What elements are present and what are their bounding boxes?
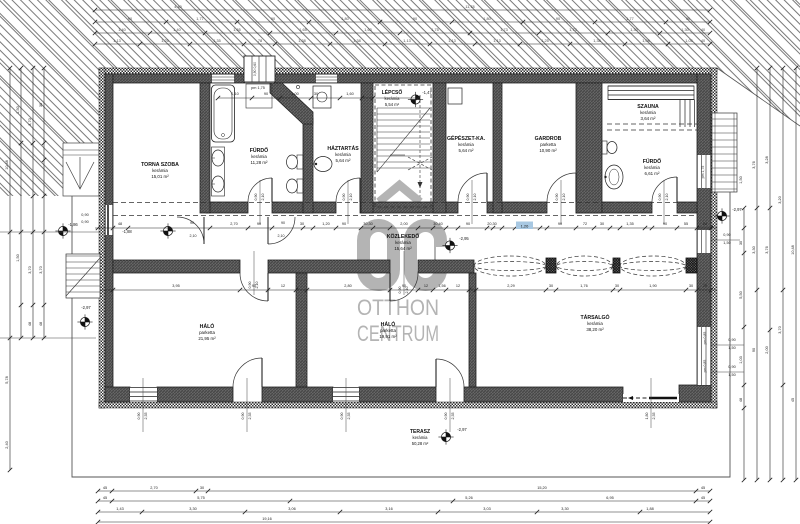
svg-text:48: 48 [28, 322, 32, 326]
svg-text:5,50: 5,50 [739, 291, 743, 298]
svg-text:3,28: 3,28 [765, 156, 769, 163]
svg-text:-1,86: -1,86 [68, 222, 78, 227]
svg-text:2,10: 2,10 [349, 194, 353, 201]
svg-text:parketta: parketta [540, 142, 556, 147]
svg-text:kerámia: kerámia [458, 142, 474, 147]
svg-text:2,35: 2,35 [451, 413, 455, 420]
svg-text:30: 30 [39, 103, 43, 107]
svg-text:1,30: 1,30 [681, 28, 688, 32]
svg-text:48: 48 [739, 398, 743, 402]
svg-text:FÜRDŐ: FÜRDŐ [250, 147, 268, 154]
svg-text:90: 90 [281, 221, 285, 225]
svg-text:5,64 m²: 5,64 m² [459, 148, 474, 153]
svg-text:2,70: 2,70 [230, 222, 237, 226]
svg-text:1,50: 1,50 [728, 346, 735, 350]
svg-text:1,03: 1,03 [739, 356, 743, 363]
svg-text:1,13: 1,13 [113, 39, 120, 43]
svg-text:1,76: 1,76 [580, 284, 587, 288]
svg-text:2,35: 2,35 [248, 413, 252, 420]
svg-text:kerámia: kerámia [640, 110, 656, 115]
svg-text:3,30: 3,30 [189, 507, 196, 511]
svg-text:3,70: 3,70 [28, 266, 32, 273]
svg-text:30,30: 30,30 [363, 222, 373, 226]
svg-text:1,80: 1,80 [645, 413, 649, 420]
svg-text:5,64 m²: 5,64 m² [336, 158, 351, 163]
svg-text:1,60: 1,60 [346, 92, 353, 96]
svg-text:kerámia: kerámia [644, 165, 660, 170]
svg-text:1,13: 1,13 [493, 39, 500, 43]
svg-text:1,50: 1,50 [739, 176, 743, 183]
svg-text:1,40: 1,40 [173, 28, 180, 32]
svg-text:19,16: 19,16 [262, 517, 272, 521]
svg-text:90: 90 [413, 17, 417, 21]
svg-text:45: 45 [103, 486, 107, 490]
svg-text:FÜRDŐ: FÜRDŐ [643, 158, 661, 165]
svg-text:0,90: 0,90 [658, 194, 662, 201]
svg-text:1,50: 1,50 [728, 373, 735, 377]
svg-text:40: 40 [701, 39, 705, 43]
svg-text:4,40: 4,40 [174, 5, 181, 9]
svg-text:40: 40 [701, 28, 705, 32]
svg-text:90: 90 [257, 222, 261, 226]
svg-text:10,48: 10,48 [791, 245, 795, 255]
svg-text:GÉPÉSZET-KA.: GÉPÉSZET-KA. [447, 134, 486, 142]
svg-text:2,10: 2,10 [261, 194, 265, 201]
svg-text:2,10: 2,10 [665, 194, 669, 201]
svg-text:1,13: 1,13 [403, 39, 410, 43]
svg-text:1,10: 1,10 [231, 92, 238, 96]
svg-text:3,16: 3,16 [385, 507, 392, 511]
svg-text:12: 12 [281, 284, 285, 288]
svg-text:90: 90 [342, 222, 346, 226]
svg-text:21,95 m²: 21,95 m² [198, 336, 216, 341]
svg-text:3,95: 3,95 [172, 284, 179, 288]
svg-text:90: 90 [264, 92, 268, 96]
svg-text:kerámia: kerámia [152, 168, 168, 173]
svg-text:3,03: 3,03 [483, 507, 490, 511]
svg-text:15,20: 15,20 [537, 486, 547, 490]
svg-text:45: 45 [103, 496, 107, 500]
svg-text:pm 0,85: pm 0,85 [703, 360, 707, 373]
svg-text:30: 30 [549, 284, 553, 288]
svg-text:78: 78 [258, 39, 262, 43]
svg-text:kerámia: kerámia [587, 321, 603, 326]
svg-text:1,77: 1,77 [626, 17, 633, 21]
svg-text:0,90: 0,90 [81, 220, 88, 224]
svg-text:3,20: 3,20 [778, 196, 782, 203]
svg-text:3,30: 3,30 [561, 507, 568, 511]
svg-text:48: 48 [39, 322, 43, 326]
svg-text:LÉPCSŐ: LÉPCSŐ [382, 88, 403, 96]
svg-text:CENTRUM: CENTRUM [357, 321, 439, 346]
svg-text:5,78: 5,78 [5, 376, 9, 383]
svg-text:0,90: 0,90 [340, 413, 344, 420]
svg-text:1,65: 1,65 [233, 28, 240, 32]
svg-text:45: 45 [701, 496, 705, 500]
svg-text:5,75: 5,75 [197, 496, 204, 500]
svg-text:0,90: 0,90 [241, 413, 245, 420]
svg-text:-2,97: -2,97 [81, 305, 91, 310]
svg-text:20: 20 [703, 284, 707, 288]
svg-text:2,80: 2,80 [344, 284, 351, 288]
svg-text:1,80: 1,80 [341, 17, 348, 21]
svg-text:2,00: 2,00 [765, 346, 769, 353]
svg-text:0,90: 0,90 [81, 213, 88, 217]
svg-text:1,08: 1,08 [642, 39, 649, 43]
svg-text:pm 1,75: pm 1,75 [251, 86, 265, 90]
svg-text:2,40: 2,40 [5, 441, 9, 448]
svg-text:90: 90 [556, 17, 560, 21]
svg-text:90: 90 [252, 284, 256, 288]
svg-text:2,10: 2,10 [562, 194, 566, 201]
svg-text:-1,47: -1,47 [422, 90, 432, 95]
svg-text:1,63: 1,63 [364, 28, 371, 32]
svg-text:1,65: 1,65 [299, 28, 306, 32]
svg-text:2,70: 2,70 [150, 486, 157, 490]
svg-text:90: 90 [271, 17, 275, 21]
svg-text:pm 0,85: pm 0,85 [703, 332, 707, 345]
svg-text:20,30: 20,30 [487, 222, 497, 226]
svg-text:38,20 m²: 38,20 m² [586, 327, 604, 332]
svg-text:1,75: 1,75 [431, 28, 438, 32]
svg-text:kerámia: kerámia [395, 240, 411, 245]
svg-text:1,13: 1,13 [448, 39, 455, 43]
svg-text:kerámia: kerámia [335, 152, 351, 157]
svg-text:3,30: 3,30 [752, 246, 756, 253]
svg-text:90: 90 [466, 222, 470, 226]
svg-text:2,35: 2,35 [347, 413, 351, 420]
svg-text:0,90: 0,90 [723, 233, 730, 237]
svg-text:90: 90 [752, 348, 756, 352]
svg-text:1,30: 1,30 [630, 28, 637, 32]
svg-text:0,90: 0,90 [137, 413, 141, 420]
svg-text:1,80: 1,80 [483, 17, 490, 21]
svg-text:90: 90 [663, 222, 667, 226]
svg-text:0,90 0,60: 0,90 0,60 [253, 62, 257, 76]
svg-text:-2,97: -2,97 [732, 207, 742, 212]
svg-text:90: 90 [558, 222, 562, 226]
svg-text:2,10: 2,10 [473, 194, 477, 201]
svg-text:parketta: parketta [380, 328, 396, 333]
svg-text:HÁLÓ: HÁLÓ [381, 320, 396, 328]
svg-text:1,35: 1,35 [213, 39, 220, 43]
svg-text:1,26: 1,26 [521, 224, 530, 229]
svg-text:1,88: 1,88 [646, 507, 653, 511]
svg-text:0,90: 0,90 [342, 194, 346, 201]
svg-text:90: 90 [686, 17, 690, 21]
svg-text:1,25: 1,25 [541, 39, 548, 43]
svg-text:1,38: 1,38 [298, 39, 305, 43]
svg-text:-2,97: -2,97 [457, 427, 467, 432]
svg-text:3,64 m²: 3,64 m² [641, 116, 656, 121]
svg-text:1,05: 1,05 [685, 39, 692, 43]
svg-text:1,25: 1,25 [161, 39, 168, 43]
svg-text:3,06: 3,06 [288, 507, 295, 511]
svg-text:kerámia: kerámia [413, 435, 429, 440]
svg-text:10,48: 10,48 [5, 160, 9, 170]
svg-text:90: 90 [190, 221, 194, 225]
svg-text:2,35: 2,35 [144, 413, 148, 420]
svg-text:2,00: 2,00 [400, 222, 407, 226]
svg-text:5,26: 5,26 [465, 496, 472, 500]
svg-text:30: 30 [739, 241, 743, 245]
svg-text:1,50: 1,50 [723, 241, 730, 245]
svg-text:6,61 m²: 6,61 m² [645, 171, 660, 176]
svg-text:30: 30 [200, 486, 204, 490]
svg-text:20: 20 [703, 222, 707, 226]
svg-text:19,91 m²: 19,91 m² [379, 334, 397, 339]
svg-text:0,90: 0,90 [728, 338, 735, 342]
svg-text:1,38: 1,38 [593, 39, 600, 43]
svg-text:pm 1,75: pm 1,75 [701, 166, 705, 179]
svg-text:15,01 m²: 15,01 m² [151, 174, 169, 179]
svg-text:1,38: 1,38 [353, 39, 360, 43]
svg-text:-1,88: -1,88 [122, 229, 132, 234]
svg-text:0,90: 0,90 [728, 365, 735, 369]
svg-text:6,95: 6,95 [606, 496, 613, 500]
svg-text:1,50: 1,50 [16, 254, 20, 261]
svg-text:0,90: 0,90 [466, 194, 470, 201]
svg-text:30,40: 30,40 [433, 222, 443, 226]
svg-text:-2,95: -2,95 [459, 236, 469, 241]
svg-text:1,50: 1,50 [16, 106, 20, 113]
svg-text:11,28 m²: 11,28 m² [250, 160, 268, 165]
svg-text:TÁRSALGÓ: TÁRSALGÓ [580, 313, 609, 321]
svg-text:1,00: 1,00 [291, 92, 298, 96]
svg-text:1,77: 1,77 [196, 17, 203, 21]
svg-text:1,73: 1,73 [500, 28, 507, 32]
svg-text:0,90: 0,90 [555, 194, 559, 201]
svg-text:1,73: 1,73 [569, 28, 576, 32]
svg-text:3,70: 3,70 [28, 118, 32, 125]
svg-text:HÁZTARTÁS: HÁZTARTÁS [327, 145, 359, 152]
svg-text:HÁLÓ: HÁLÓ [200, 322, 215, 330]
svg-text:0,90: 0,90 [444, 413, 448, 420]
svg-text:11,78: 11,78 [465, 5, 474, 9]
svg-text:kerámia: kerámia [251, 154, 267, 159]
svg-text:1,40: 1,40 [118, 28, 125, 32]
svg-text:OTTHON: OTTHON [357, 295, 439, 320]
svg-text:55: 55 [684, 222, 688, 226]
svg-text:3,70: 3,70 [778, 326, 782, 333]
svg-text:2,10: 2,10 [190, 234, 197, 238]
svg-text:48: 48 [118, 222, 122, 226]
svg-text:kerámia: kerámia [385, 96, 401, 101]
svg-text:30: 30 [600, 222, 604, 226]
svg-text:2,35: 2,35 [652, 413, 656, 420]
svg-text:3,70: 3,70 [39, 266, 43, 273]
svg-text:1,20: 1,20 [322, 222, 329, 226]
svg-text:1,90: 1,90 [649, 284, 656, 288]
svg-text:45: 45 [791, 398, 795, 402]
svg-text:30: 30 [314, 92, 318, 96]
svg-text:30: 30 [689, 284, 693, 288]
svg-text:45: 45 [701, 486, 705, 490]
svg-text:90: 90 [128, 17, 132, 21]
svg-text:5,54 m²: 5,54 m² [385, 102, 400, 107]
svg-text:parketta: parketta [199, 330, 215, 335]
svg-text:30: 30 [300, 222, 304, 226]
svg-text:72: 72 [583, 222, 587, 226]
svg-text:2,10: 2,10 [278, 234, 285, 238]
svg-text:15,64 m²: 15,64 m² [394, 246, 412, 251]
svg-text:0,90: 0,90 [254, 194, 258, 201]
svg-text:1,56: 1,56 [438, 284, 445, 288]
svg-text:3,76: 3,76 [765, 246, 769, 253]
svg-text:3,76: 3,76 [752, 161, 756, 168]
svg-text:10,90 m²: 10,90 m² [539, 148, 557, 153]
svg-text:2,29: 2,29 [507, 284, 514, 288]
svg-text:30: 30 [615, 284, 619, 288]
svg-text:1,35: 1,35 [626, 222, 633, 226]
svg-text:12: 12 [456, 284, 460, 288]
svg-text:1,43: 1,43 [116, 507, 123, 511]
svg-text:90: 90 [402, 284, 406, 288]
svg-text:KÖZLEKEDŐ: KÖZLEKEDŐ [387, 233, 420, 240]
svg-text:50,28 m²: 50,28 m² [412, 441, 429, 446]
svg-text:12: 12 [424, 284, 428, 288]
